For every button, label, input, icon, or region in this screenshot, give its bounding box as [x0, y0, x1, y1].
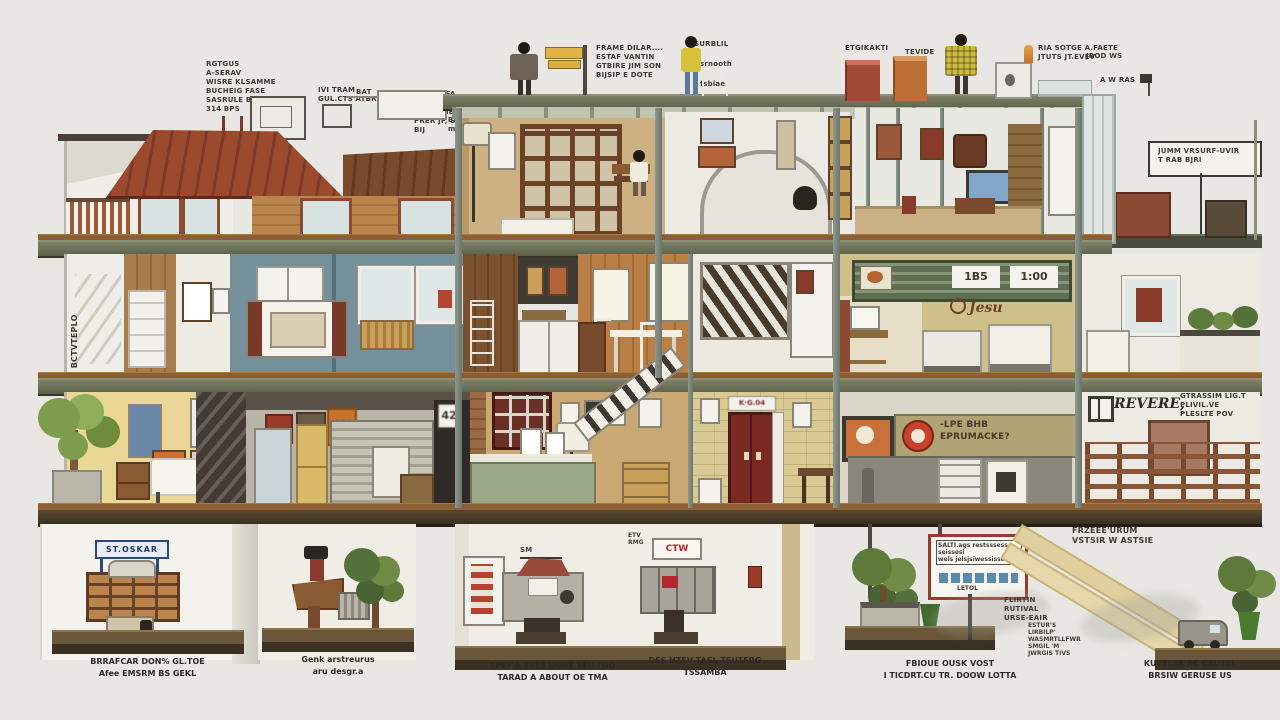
yellow-sign-bar-2: [548, 60, 581, 69]
arch-room-frame: [700, 118, 734, 144]
person-head: [955, 34, 967, 46]
plant-right: [1218, 556, 1256, 592]
shop-figure: [862, 468, 874, 508]
mid-staircase: [700, 262, 790, 340]
floor-lamp-pole: [472, 136, 475, 222]
green-sign-panel-1: 1B5: [952, 266, 1000, 288]
ground-staircase: [196, 392, 246, 508]
blue-door: [254, 428, 292, 510]
entry-plaque-2: [792, 402, 812, 428]
tree-foliage: [38, 398, 80, 438]
machine2-body: [640, 566, 716, 614]
right-pole: [1254, 120, 1257, 240]
radiator: [338, 592, 370, 620]
person-torso: [945, 46, 977, 76]
brown-roof: [343, 148, 463, 196]
dresser-drawer: [270, 312, 326, 348]
vignette1-platform: [52, 630, 244, 644]
glass-tower: [1082, 94, 1116, 244]
machine1-base: [516, 632, 566, 644]
yellow-sign-bar: [545, 47, 583, 59]
caption-4: DES HTEV TASL TEUTERG TSSAMBA: [630, 655, 780, 678]
red-sign-blue-bar: [936, 573, 1018, 583]
banner-logo-inner: [911, 429, 925, 443]
dresser-side: [248, 302, 262, 356]
office-desk: [844, 330, 888, 338]
counter-top: [470, 454, 592, 462]
building-cutaway-scene: RGTGUS A-SERAV WISRE KLSAMME BUCHEIG FAS…: [0, 0, 1280, 720]
chimney-orange: [893, 56, 927, 101]
revere-subtext: GTRASSIM LIG.T PLIVIL.VE PLESLTE POV: [1180, 392, 1260, 419]
white-dresser: [518, 320, 584, 374]
vent-flame-icon: [1024, 45, 1033, 63]
person-roof-mid: [678, 36, 704, 94]
roof-rail: [702, 68, 728, 96]
right-callout-text: JUMM VRSURF-UVIR T RAB BJRI: [1158, 147, 1252, 165]
clutter-shelf: [522, 310, 566, 320]
person-legs: [507, 80, 541, 95]
entry-plaque: [700, 398, 720, 424]
dresser-body: [246, 300, 348, 358]
vignette3-right-wall: [782, 524, 800, 660]
flag-icon: [1140, 74, 1152, 83]
machine-head: [304, 546, 328, 559]
person-torso: [630, 162, 648, 182]
person-head: [685, 36, 697, 48]
machine1-pedestal: [524, 618, 560, 632]
frame-column-4: [828, 194, 852, 220]
person-torso: [510, 54, 538, 80]
mid-left-frame-2: [212, 288, 230, 314]
sideboard-item: [902, 196, 916, 214]
study-frame: [488, 132, 516, 170]
window-red-item: [438, 290, 452, 308]
person-head: [633, 150, 645, 162]
machine2-base: [654, 632, 698, 644]
banner-text: -LPE BHB EPRUMACKE?: [940, 420, 1070, 443]
machine1-window: [528, 578, 558, 596]
vignette2-tree-trunk: [372, 598, 379, 628]
machine-neck: [310, 559, 324, 581]
revere-logo: REVERE,: [1114, 396, 1185, 412]
glass-room-frame: [876, 124, 902, 160]
machine1-wheel: [560, 590, 574, 604]
washer-door: [996, 472, 1016, 492]
person-legs: [678, 72, 704, 94]
door-sign: K·G.04: [728, 396, 776, 411]
annotation-etgikakti: ETGIKAKTI: [845, 44, 888, 53]
wall-art: [953, 134, 987, 168]
kiosk-top-item: [108, 560, 156, 578]
window-red-cabinet: [1136, 288, 1162, 322]
caption-3: EPEF'A TAES UGHT SEU-TGG TARAD A ABOUT O…: [470, 660, 635, 683]
script-logo: Jesu: [950, 298, 1003, 316]
glass-room-door: [1048, 126, 1078, 216]
logo-mark: [867, 271, 883, 283]
annotation-jrod: JROD WS: [1086, 52, 1122, 61]
revere-window-icon: [1088, 396, 1114, 422]
column-3: [688, 254, 693, 508]
sign-post: [583, 45, 587, 95]
dresser-side: [332, 302, 346, 356]
office-shelf: [840, 300, 850, 372]
terrace-bench: [1115, 192, 1171, 238]
vignette2-platform: [262, 628, 414, 642]
terrace-table: [1205, 200, 1247, 238]
glass-room-frame-2: [920, 128, 944, 160]
caption-6: KUTTLSE.AC CAUTEL BRSIW GERUSE US: [1110, 658, 1270, 681]
red-sign-small: LETOL: [957, 585, 978, 592]
bar-frame-4: [638, 398, 662, 428]
door-trim: [772, 412, 784, 508]
machine2-red-cell: [662, 576, 678, 588]
schematic-box-2-icon: [322, 104, 352, 128]
person-study: [628, 150, 650, 196]
column-4: [833, 108, 840, 508]
annotation-flirtin: FLIRTIN RUTIVAL URSE-EAIR: [1004, 596, 1048, 623]
person-roof-right: [943, 34, 979, 94]
callout-rect: [377, 90, 447, 120]
frame-column-1: [828, 116, 852, 142]
person-arch-head: [793, 186, 817, 210]
arch-room-frame-2: [698, 146, 736, 168]
side-table: [116, 462, 150, 500]
frame-column-2: [828, 142, 852, 168]
annotation-estur: ESTUR'S LIRBILP' WASMRTLLFWR SMGIL 'M JW…: [1028, 622, 1098, 657]
caption-5: FBIOUE OUSK VOST I TICDRT.CU TR. DOOW LO…: [865, 658, 1035, 681]
script-logo-ring-icon: [950, 298, 966, 314]
person-legs: [628, 182, 650, 196]
green-sign-logo: [860, 266, 892, 290]
vignette2-tree: [344, 548, 380, 582]
kiosk-slat-cabinet: [86, 572, 180, 622]
ctw-sign: CTW: [652, 538, 702, 560]
callout-line: [346, 96, 378, 98]
annotation-frzee: FRZEEE'URUM VSTSIR W ASTSIE: [1072, 526, 1182, 547]
wood-panel: [1008, 124, 1042, 206]
caption-1: BRRAFCAR DON% GL.TOE Afee EMSRM BS GEKL: [60, 656, 235, 679]
door-knobs: [744, 452, 749, 460]
person-torso: [681, 48, 701, 72]
schematic-inner-box: [260, 106, 292, 128]
oskar-sign: ST.OSKAR: [95, 540, 169, 559]
mid-left-frame: [182, 282, 212, 322]
entry-table-legs: [802, 476, 806, 506]
column-2: [655, 108, 662, 378]
tan-door: [296, 424, 328, 510]
arch-room-tall-frame: [776, 120, 796, 170]
mid-stair-frame: [796, 270, 814, 294]
annotation-frame-dilar: FRAME DILAR.... ESTAF VANTIN GTBIRE JIM …: [596, 44, 686, 80]
dining-sideboard: [578, 322, 606, 376]
machine2-pedestal: [664, 610, 684, 632]
alarm-box: [748, 566, 762, 588]
teal-window: [358, 266, 414, 324]
ladder: [470, 300, 494, 366]
truck-window: [1210, 625, 1220, 633]
plant-left: [852, 548, 892, 586]
teal-window-blinds: [360, 320, 414, 350]
poster-art: [471, 564, 493, 614]
banner-logo-circle: [902, 420, 934, 452]
chimney-red: [845, 60, 880, 101]
person-roof-left: [507, 42, 541, 95]
deck-railing: [1085, 442, 1260, 504]
person-head: [518, 42, 530, 54]
green-sign-panel-2: 1:00: [1010, 266, 1058, 288]
dining-window: [592, 268, 630, 322]
alcove-frame-2: [548, 266, 568, 296]
table-leg: [614, 337, 618, 373]
column-1: [455, 108, 462, 508]
white-bookshelf: [128, 290, 166, 368]
sm-label: SM: [520, 546, 562, 559]
office-monitor: [850, 306, 880, 330]
counter-plants: [1188, 308, 1214, 330]
entry-table: [798, 468, 834, 476]
caption-2: Genk arstreurus aru desgr.a: [268, 654, 408, 677]
person-legs: [943, 76, 979, 94]
green-pot-right: [1238, 612, 1260, 640]
right-callout-leader: [1200, 173, 1202, 235]
rooftop-unit-mark: [1005, 74, 1015, 86]
column-5: [1075, 108, 1082, 508]
skull-mark: [856, 426, 874, 444]
alcove-frame: [526, 266, 544, 296]
poster-frame: [463, 556, 505, 626]
sideboard-item-2: [955, 198, 995, 214]
frame-column-3: [828, 168, 852, 194]
etv-note: ETV RMG: [628, 532, 644, 546]
annotation-awras: A W RAS: [1100, 76, 1135, 85]
